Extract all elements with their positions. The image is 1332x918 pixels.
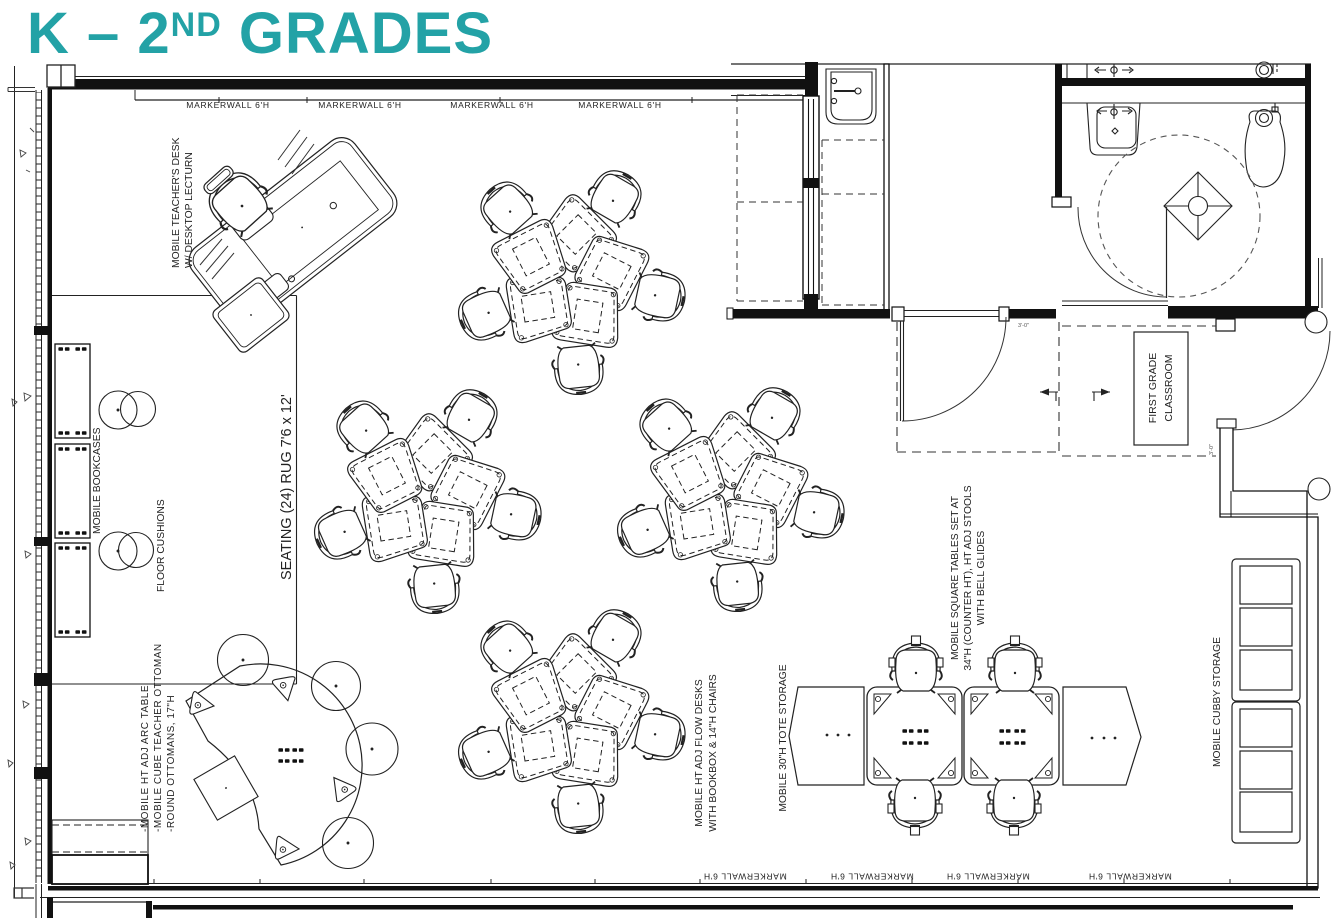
svg-text:MOBILE SQUARE TABLES SET AT: MOBILE SQUARE TABLES SET AT [950,495,961,660]
svg-text:MARKERWALL 6'H: MARKERWALL 6'H [450,100,533,110]
svg-text:MARKERWALL 6'H: MARKERWALL 6'H [186,100,269,110]
svg-text:W/ DESKTOP LECTURN: W/ DESKTOP LECTURN [184,152,195,268]
svg-text:MOBILE CUBBY STORAGE: MOBILE CUBBY STORAGE [1212,637,1223,767]
svg-text:SEATING (24) RUG 7'6 x 12': SEATING (24) RUG 7'6 x 12' [279,394,295,580]
svg-text:34"H (COUNTER HT), HT ADJ STOO: 34"H (COUNTER HT), HT ADJ STOOLS [963,485,974,670]
svg-text:-ROUND OTTOMANS, 17"H: -ROUND OTTOMANS, 17"H [166,695,177,832]
svg-text:MARKERWALL 6'H: MARKERWALL 6'H [703,872,786,882]
svg-text:MARKERWALL 6'H: MARKERWALL 6'H [946,872,1029,882]
svg-text:FLOOR CUSHIONS: FLOOR CUSHIONS [156,499,167,592]
svg-text:MARKERWALL 6'H: MARKERWALL 6'H [830,872,913,882]
svg-text:WITH BOOKBOX & 14"H CHAIRS: WITH BOOKBOX & 14"H CHAIRS [708,674,719,832]
svg-text:K – 2ND GRADES: K – 2ND GRADES [27,1,493,66]
svg-text:3'-0": 3'-0" [1209,444,1215,455]
svg-text:WITH BELL GLIDES: WITH BELL GLIDES [976,531,987,626]
svg-text:-MOBILE CUBE TEACHER OTTOMAN: -MOBILE CUBE TEACHER OTTOMAN [153,643,164,832]
svg-text:MARKERWALL 6'H: MARKERWALL 6'H [318,100,401,110]
svg-text:CLASSROOM: CLASSROOM [1163,354,1175,421]
svg-text:FIRST GRADE: FIRST GRADE [1147,353,1159,423]
svg-text:MOBILE HT ADJ FLOW DESKS: MOBILE HT ADJ FLOW DESKS [694,679,705,827]
svg-text:MOBILE BOOKCASES: MOBILE BOOKCASES [92,427,103,534]
svg-text:MOBILE 30"H TOTE STORAGE: MOBILE 30"H TOTE STORAGE [778,664,789,811]
svg-text:MARKERWALL 6'H: MARKERWALL 6'H [578,100,661,110]
svg-text:MARKERWALL 6'H: MARKERWALL 6'H [1088,872,1171,882]
svg-text:3'-0": 3'-0" [1018,323,1029,329]
svg-text:-MOBILE HT ADJ ARC TABLE: -MOBILE HT ADJ ARC TABLE [140,685,151,832]
svg-text:MOBILE TEACHER'S DESK: MOBILE TEACHER'S DESK [171,137,182,268]
